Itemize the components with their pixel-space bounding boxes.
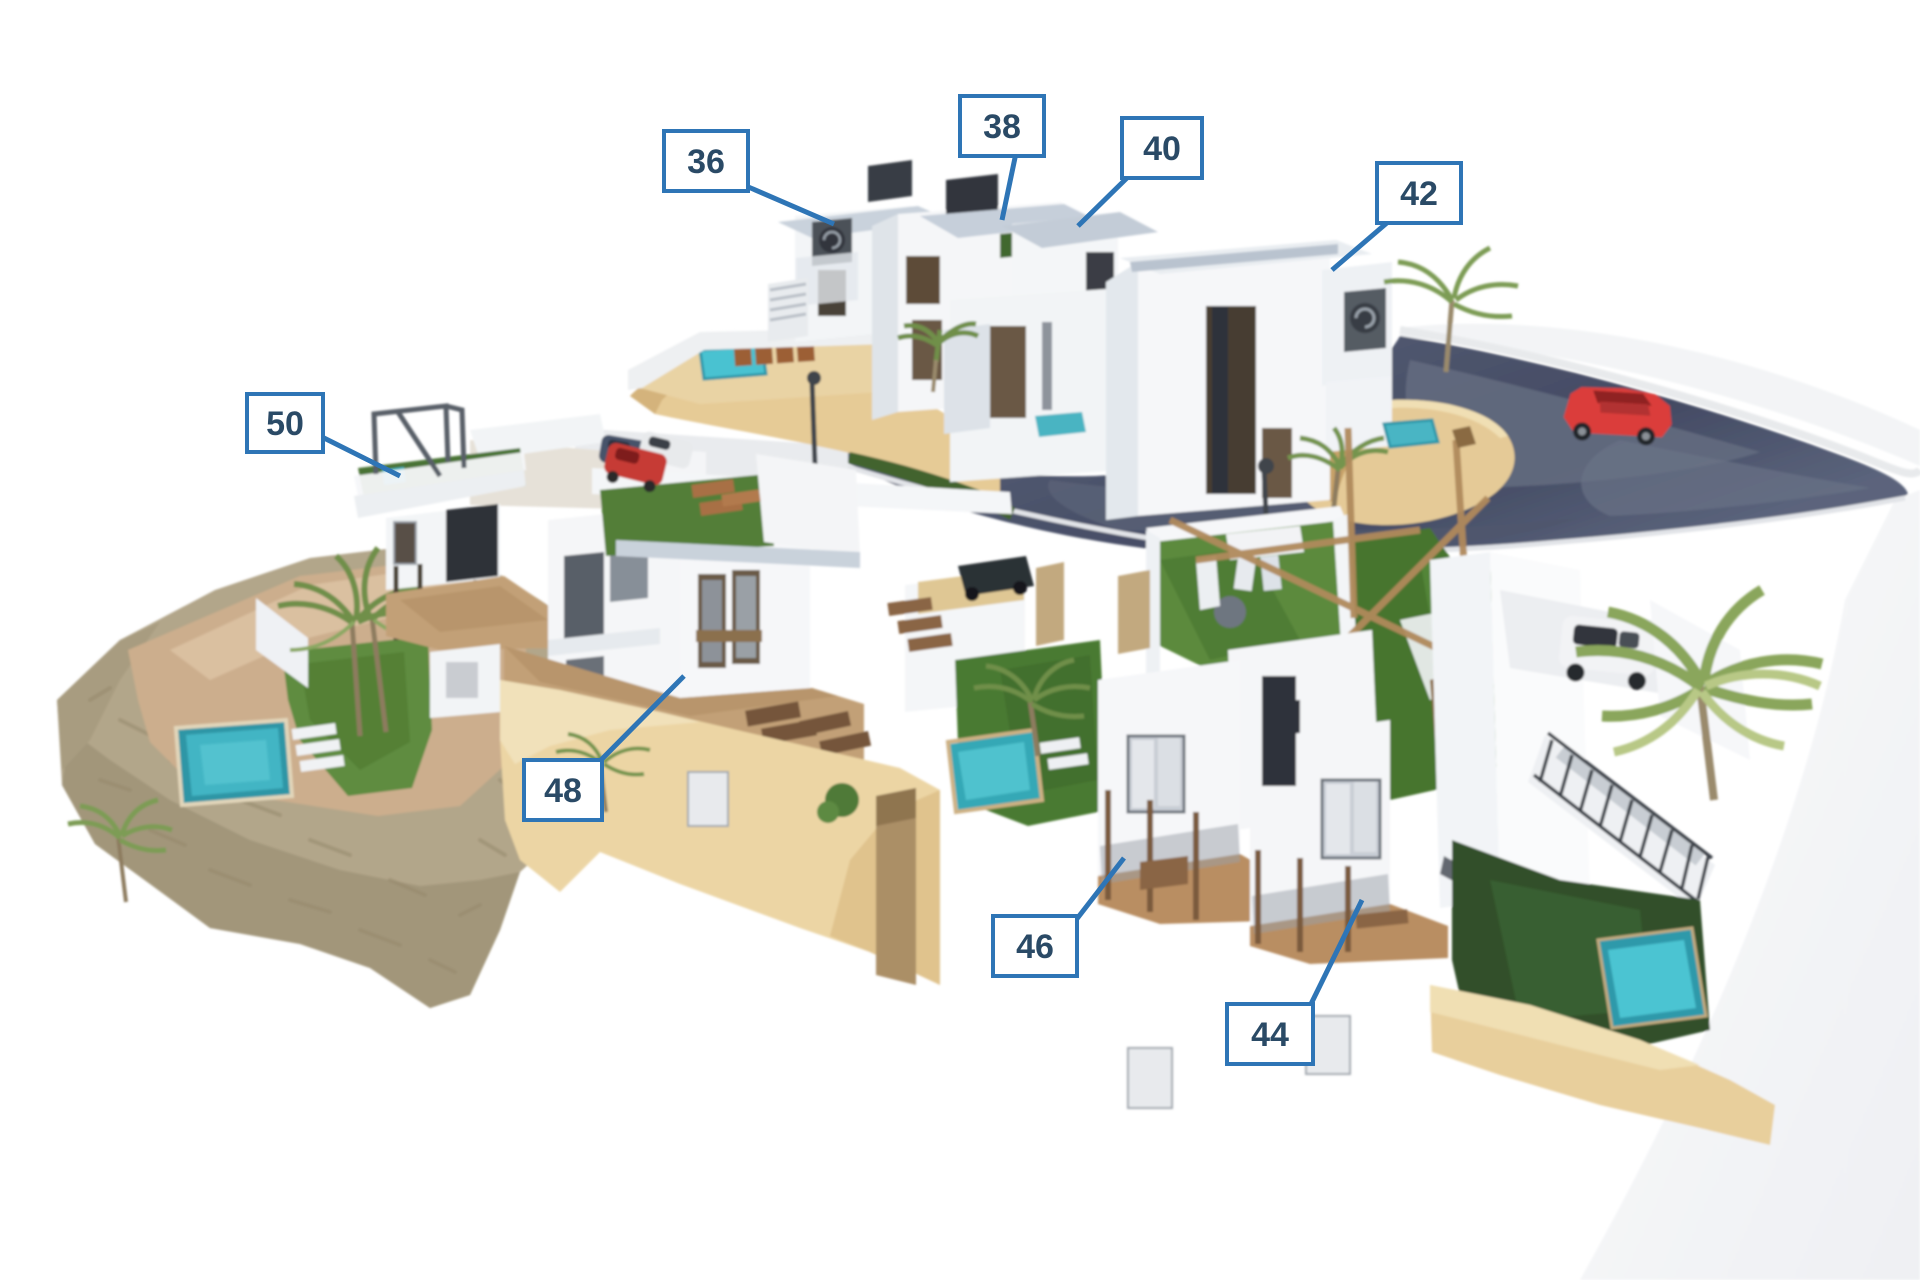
svg-text:38: 38	[983, 108, 1021, 146]
svg-text:42: 42	[1400, 175, 1438, 213]
svg-text:36: 36	[687, 143, 725, 181]
svg-text:40: 40	[1143, 130, 1181, 168]
svg-text:50: 50	[266, 405, 304, 443]
svg-text:46: 46	[1016, 928, 1054, 966]
svg-text:48: 48	[544, 772, 582, 810]
svg-text:44: 44	[1251, 1016, 1289, 1054]
